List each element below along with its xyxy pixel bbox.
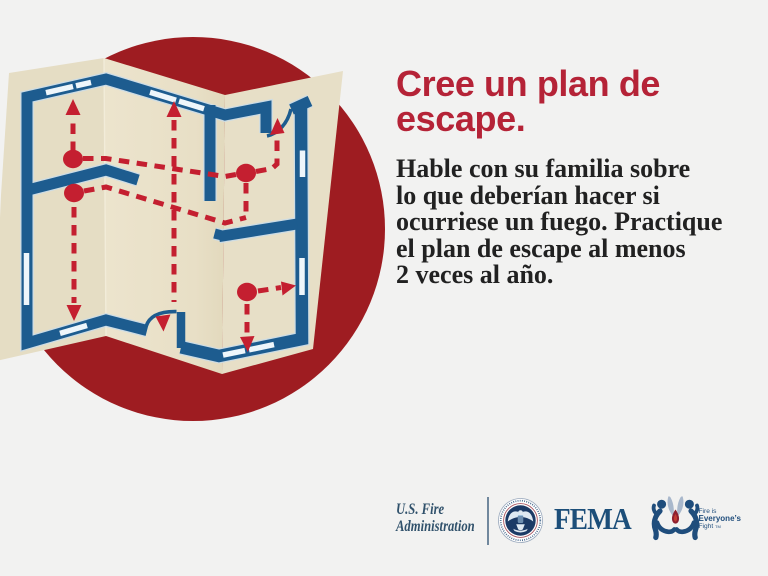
svg-text:Everyone’s: Everyone’s [699, 514, 742, 523]
svg-text:Fight TM: Fight TM [699, 523, 721, 530]
